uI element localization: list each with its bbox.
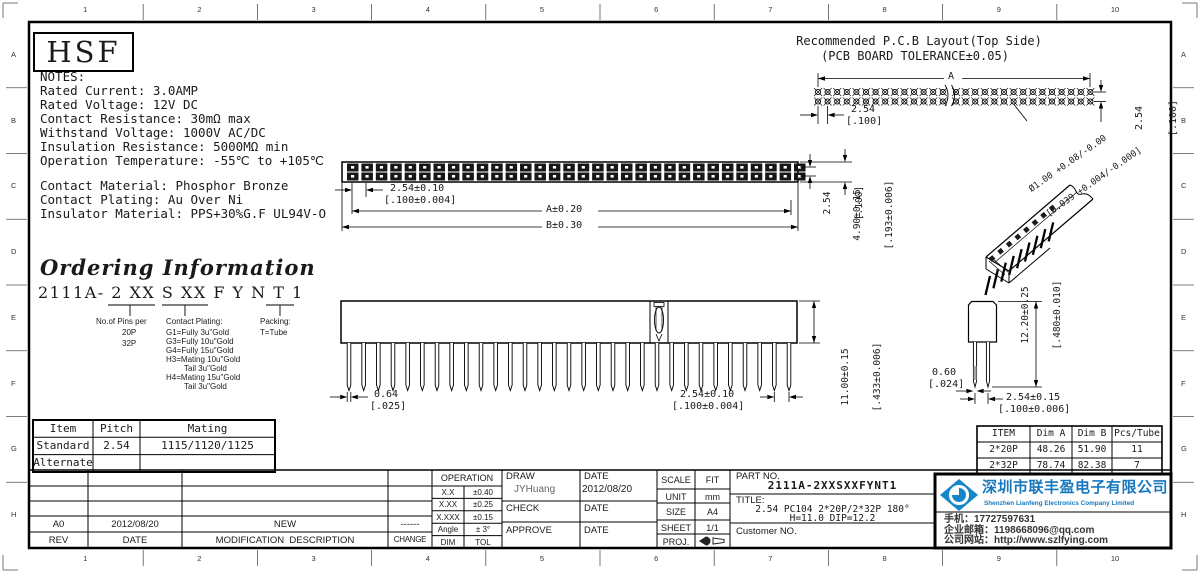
ordering-packing-option: T=Tube <box>260 329 288 338</box>
company-name-cn: 深圳市联丰盈电子有限公司 <box>982 480 1168 497</box>
scale-label: SCALE <box>657 475 695 485</box>
mating-cell: 1115/1120/1125 <box>140 440 275 452</box>
company-logo-icon <box>939 478 979 512</box>
drawing-sheet: 1122334455667788991010AABBCCDDEEFFGGHH H… <box>0 0 1200 573</box>
ruler-label: 1 <box>83 554 87 563</box>
ruler-label: F <box>11 379 16 388</box>
topview-dim-a: A±0.20 <box>546 204 582 215</box>
pcb-layout-title: Recommended P.C.B Layout(Top Side) <box>785 35 1053 48</box>
revision-header: REV <box>29 536 88 547</box>
notes-line: Contact Plating: Au Over Ni <box>40 193 243 207</box>
ruler-label: 3 <box>312 5 316 14</box>
scale-value: FIT <box>695 475 730 485</box>
tol-dim: X.XX <box>432 501 464 510</box>
ruler-label: 9 <box>997 554 1001 563</box>
frontview-pitch-in: [.100±0.004] <box>672 401 744 412</box>
revision-date: 2012/08/20 <box>88 520 182 531</box>
company-website: 公司网站：http://www.szlfying.com <box>944 535 1108 546</box>
draw-date: 2012/08/20 <box>582 484 632 495</box>
pcs-header: Dim B <box>1072 429 1112 440</box>
pcs-cell: 82.38 <box>1072 461 1112 472</box>
ruler-label: C <box>1181 181 1186 190</box>
tol-dim: X.XXX <box>432 514 464 523</box>
notes-line: Insulation Resistance: 5000MΩ min <box>40 140 288 154</box>
mating-header: Pitch <box>93 423 140 435</box>
tol-val: ±0.40 <box>464 489 502 498</box>
pcs-header: Pcs/Tube <box>1112 429 1162 440</box>
ruler-label: E <box>11 313 16 322</box>
frontview-pitch-mm: 2.54±0.10 <box>680 389 734 400</box>
notes-line: Rated Current: 3.0AMP <box>40 84 198 98</box>
pcs-cell: 78.74 <box>1030 461 1072 472</box>
ruler-label: D <box>1181 247 1186 256</box>
ruler-label: A <box>1181 50 1186 59</box>
size-value: A4 <box>695 507 730 517</box>
draw-label: DRAW <box>506 472 535 483</box>
pcs-cell: 2*32P <box>977 461 1030 472</box>
mating-cell: 2.54 <box>93 440 140 452</box>
ordering-plating-label: Contact Plating: <box>166 318 222 327</box>
sheet-value: 1/1 <box>695 523 730 533</box>
revision-change: ------ <box>388 520 432 531</box>
notes-line: Contact Material: Phosphor Bronze <box>40 179 288 193</box>
frontview-height-label: 11.00±0.15 [.433±0.006] <box>820 338 905 416</box>
mating-header: Mating <box>140 423 275 435</box>
ruler-label: B <box>11 116 16 125</box>
ruler-label: 7 <box>768 5 772 14</box>
revision-rev: A0 <box>29 520 88 531</box>
ruler-label: 5 <box>540 554 544 563</box>
frontview-pinw-in: [.025] <box>370 401 406 412</box>
company-name-en: Shenzhen Lianfeng Electronics Company Li… <box>984 500 1134 507</box>
unit-label: UNIT <box>657 492 695 502</box>
ruler-label: 9 <box>997 5 1001 14</box>
ruler-label: G <box>11 444 17 453</box>
ordering-pins-label: No.of Pins per <box>96 318 147 327</box>
company-email: 企业邮箱：1198668096@qq.com <box>944 525 1094 536</box>
pcb-pad-pitch-in: [.100] <box>846 116 882 127</box>
tol-val: ± 3° <box>464 526 502 535</box>
pcb-pad-pitch-mm: 2.54 <box>851 104 875 115</box>
sideview-height-label: 12.20±0.25 [.480±0.010] <box>1000 280 1085 350</box>
sheet-label: SHEET <box>657 523 695 533</box>
sideview-pitch-in: [.100±0.006] <box>998 404 1070 415</box>
mating-header: Item <box>33 423 93 435</box>
ruler-label: 3 <box>312 554 316 563</box>
ruler-label: 10 <box>1111 5 1119 14</box>
ruler-label: 8 <box>883 554 887 563</box>
frontview-pinw-mm: 0.64 <box>374 389 398 400</box>
ordering-pins-option: 32P <box>122 340 136 349</box>
date-label: DATE <box>584 526 609 537</box>
ruler-label: 4 <box>426 5 430 14</box>
revision-header: CHANGE <box>388 536 432 545</box>
pcs-cell: 11 <box>1112 445 1162 456</box>
projection-symbol-icon <box>698 535 726 547</box>
topview-pitch-mm: 2.54±0.10 <box>390 183 444 194</box>
notes-line: NOTES: <box>40 70 85 84</box>
ordering-title: Ordering Information <box>40 256 316 280</box>
notes-line: Insulator Material: PPS+30%G.F UL94V-O <box>40 207 326 221</box>
revision-header: DATE <box>88 536 182 547</box>
notes-line: Contact Resistance: 30mΩ max <box>40 112 251 126</box>
ordering-plating-option: Tail 3u"Gold <box>184 383 227 392</box>
ruler-label: 2 <box>197 5 201 14</box>
pcs-header: Dim A <box>1030 429 1072 440</box>
topview-pitch-in: [.100±0.004] <box>384 195 456 206</box>
notes-line: Rated Voltage: 12V DC <box>40 98 198 112</box>
date-label: DATE <box>584 504 609 515</box>
topview-dim-b: B±0.30 <box>546 220 582 231</box>
notes-line: Operation Temperature: -55℃ to +105℃ <box>40 154 324 168</box>
ordering-pins-option: 20P <box>122 329 136 338</box>
date-label: DATE <box>584 472 609 483</box>
sideview-pint-mm: 0.60 <box>932 367 956 378</box>
ruler-label: A <box>11 50 16 59</box>
tol-val: TOL <box>464 539 502 548</box>
ruler-label: 2 <box>197 554 201 563</box>
ordering-packing-label: Packing: <box>260 318 291 327</box>
customer-label: Customer NO. <box>736 527 797 538</box>
ruler-label: 7 <box>768 554 772 563</box>
draw-name: JYHuang <box>514 484 555 495</box>
pcs-cell: 7 <box>1112 461 1162 472</box>
mating-cell: Alternate <box>33 457 93 469</box>
ruler-label: E <box>1181 313 1186 322</box>
approve-label: APPROVE <box>506 526 552 537</box>
pcs-cell: 48.26 <box>1030 445 1072 456</box>
pcs-header: ITEM <box>977 429 1030 440</box>
ruler-label: F <box>1181 379 1186 388</box>
unit-value: mm <box>695 492 730 502</box>
ruler-label: D <box>11 247 16 256</box>
check-label: CHECK <box>506 504 539 515</box>
ruler-label: 6 <box>654 554 658 563</box>
tol-dim: DIM <box>432 539 464 548</box>
ruler-label: 8 <box>883 5 887 14</box>
ruler-label: G <box>1181 444 1187 453</box>
pcs-cell: 51.90 <box>1072 445 1112 456</box>
ruler-label: 4 <box>426 554 430 563</box>
revision-header: MODIFICATION DESCRIPTION <box>182 536 388 547</box>
tol-dim: X.X <box>432 489 464 498</box>
ruler-label: 1 <box>83 5 87 14</box>
ordering-code: 2111A- 2 XX S XX F Y N T 1 <box>38 284 304 302</box>
ruler-label: 6 <box>654 5 658 14</box>
mating-cell: Standard <box>33 440 93 452</box>
tol-val: ±0.15 <box>464 514 502 523</box>
ruler-label: H <box>1181 510 1186 519</box>
pcs-cell: 2*20P <box>977 445 1030 456</box>
size-label: SIZE <box>657 507 695 517</box>
notes-line: Withstand Voltage: 1000V AC/DC <box>40 126 266 140</box>
sideview-pitch-mm: 2.54±0.15 <box>1006 392 1060 403</box>
pcb-dim-a-label: A <box>948 71 954 82</box>
company-phone: 手机：17727597631 <box>944 514 1035 525</box>
pcb-layout-tolerance: (PCB BOARD TOLERANCE±0.05) <box>795 50 1035 63</box>
proj-label: PROJ. <box>657 537 695 547</box>
ruler-label: 10 <box>1111 554 1119 563</box>
sideview-pint-in: [.024] <box>928 379 964 390</box>
hsf-logo: HSF <box>33 32 134 72</box>
tol-dim: Angle <box>432 526 464 535</box>
revision-desc: NEW <box>182 520 388 531</box>
title-line2: H=11.0 DIP=12.2 <box>730 514 935 525</box>
ruler-label: C <box>11 181 16 190</box>
ruler-label: H <box>11 510 16 519</box>
operation-label: OPERATION <box>432 473 502 483</box>
ruler-label: 5 <box>540 5 544 14</box>
part-no-value: 2111A-2XXSXXFYNT1 <box>730 480 935 492</box>
tol-val: ±0.25 <box>464 501 502 510</box>
topview-height-label: 4.90±0.15 [.193±0.006] <box>832 176 917 254</box>
